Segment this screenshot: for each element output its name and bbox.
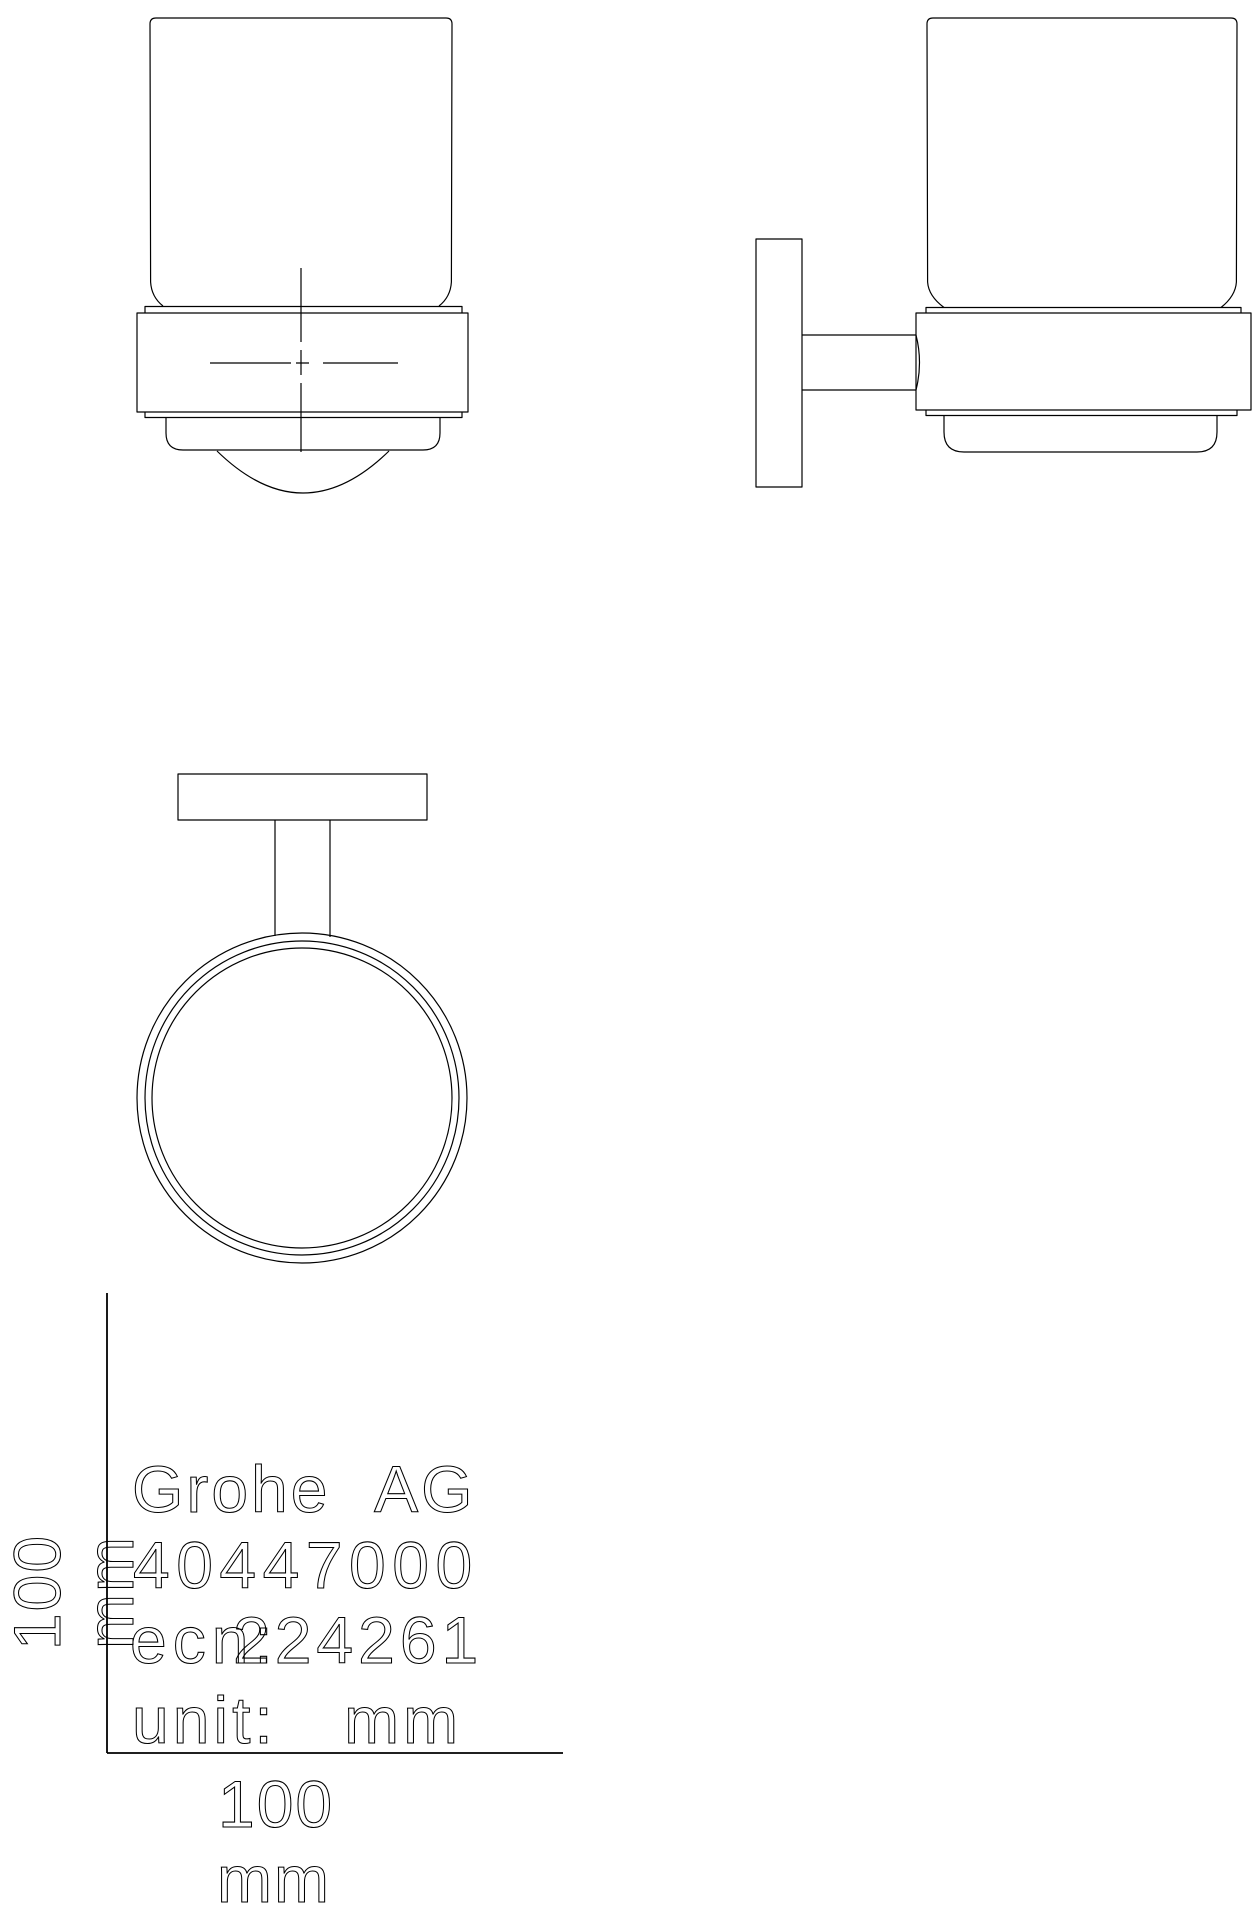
tumbler-holder-technical-drawing: Grohe AG 40447000 ecn: 224261 unit: mm 1… (0, 0, 1259, 1920)
side-view-holder-bottom-rim (926, 410, 1237, 416)
front-view-holder-top-rim (145, 307, 462, 314)
front-view (137, 18, 468, 493)
top-view (137, 774, 467, 1263)
side-view-holder-base (944, 416, 1217, 453)
side-view-holder-ring (916, 313, 1251, 410)
y-axis-value-label: 100 (0, 1534, 74, 1650)
company-name-label: Grohe AG (132, 1452, 476, 1526)
x-axis-value-label: 100 (218, 1767, 334, 1841)
side-view-mounting-arm (802, 335, 916, 390)
top-view-ring-middle-circle (145, 941, 459, 1255)
title-block: Grohe AG 40447000 ecn: 224261 unit: mm (130, 1452, 483, 1757)
top-view-ring-outer-circle (137, 933, 467, 1263)
side-view-glass-outline (927, 18, 1237, 308)
side-view-holder-top-rim (926, 308, 1241, 314)
front-view-holder-base (166, 418, 440, 451)
front-view-glass-bottom-arc (217, 451, 389, 493)
front-view-glass-outline (150, 18, 452, 306)
product-number-label: 40447000 (133, 1528, 479, 1602)
unit-label: unit: mm (132, 1683, 462, 1757)
top-view-mounting-arm (275, 820, 330, 937)
cad-drawing-sheet: Grohe AG 40447000 ecn: 224261 unit: mm 1… (0, 0, 1259, 1920)
ecn-number-label: 224261 (233, 1603, 483, 1677)
y-axis-unit-label: mm (73, 1535, 147, 1649)
top-view-wall-plate (178, 774, 427, 820)
side-view (756, 18, 1251, 487)
side-view-wall-plate (756, 239, 802, 487)
front-view-holder-bottom-rim (145, 412, 462, 418)
top-view-ring-inner-circle (152, 948, 452, 1248)
x-axis-unit-label: mm (217, 1842, 331, 1916)
